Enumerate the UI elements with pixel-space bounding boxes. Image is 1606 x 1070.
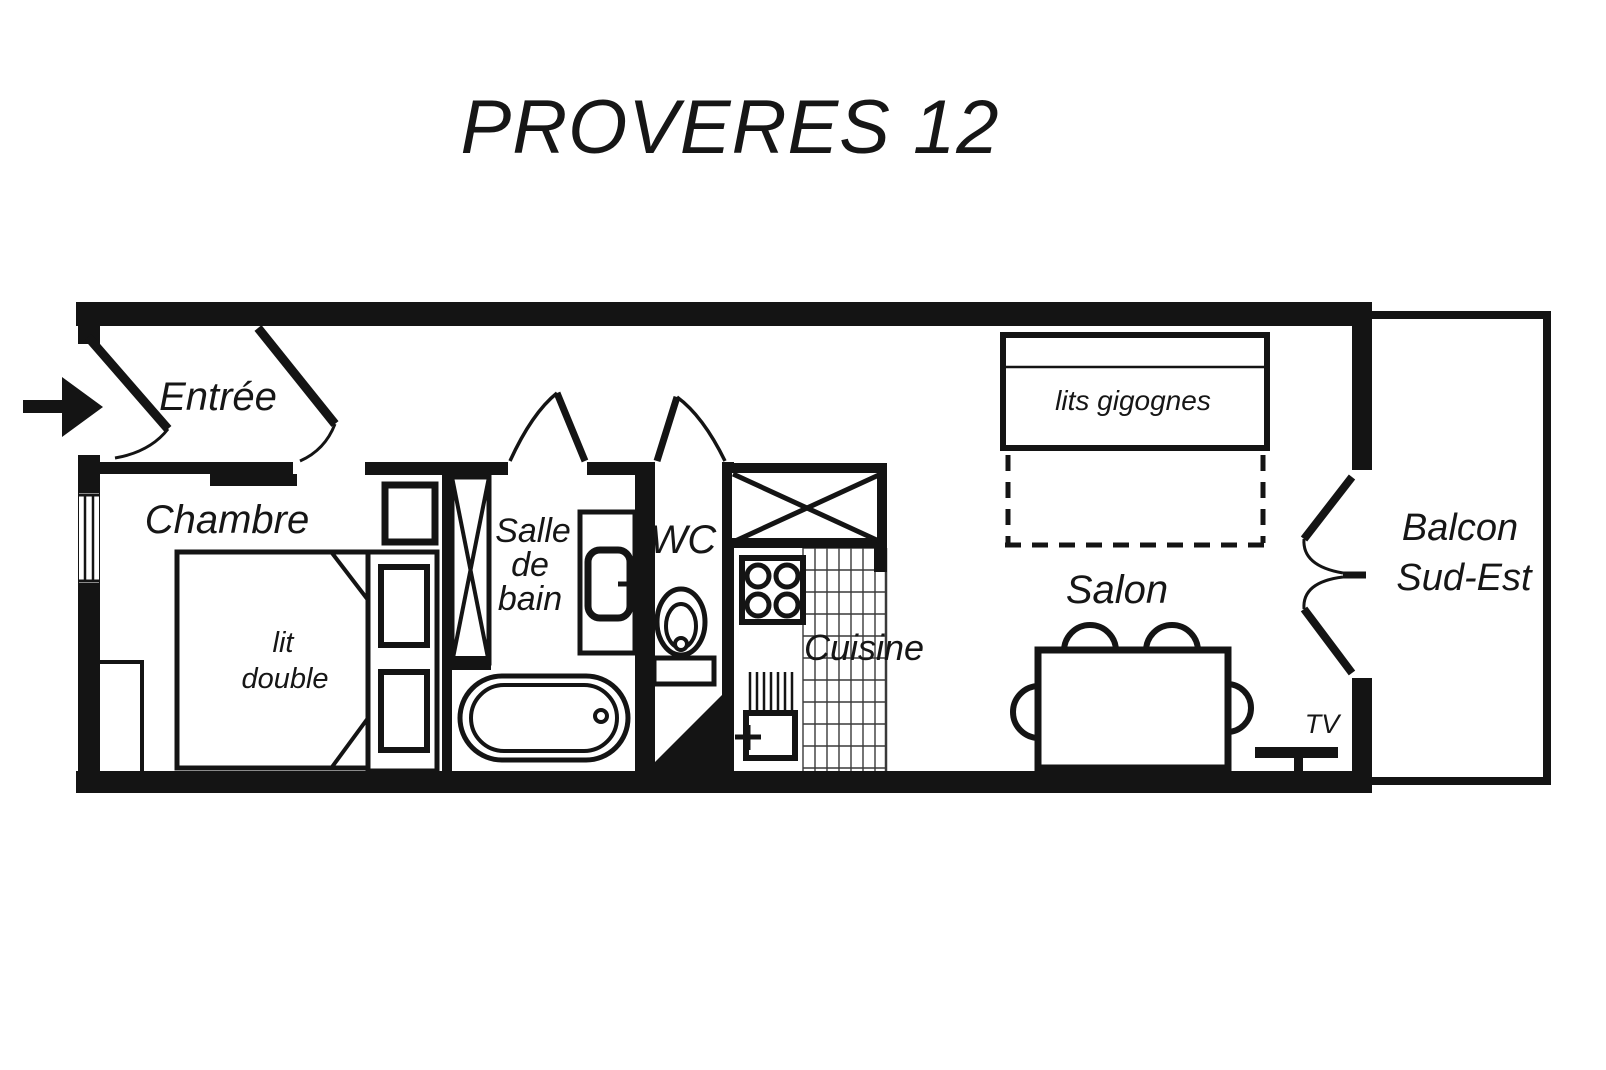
wall-wc-diagonal [646,695,734,771]
label-salle-de-bain-1: Salle [495,512,571,550]
label-wc: WC [650,518,718,562]
stove-burner [747,594,769,616]
tv-unit [1255,747,1338,758]
stove-burner [747,565,769,587]
bathtub-drain [595,710,607,722]
wall-right-lower [1352,678,1372,771]
corner-cabinet [100,662,142,771]
label-entree: Entrée [159,375,277,419]
wardrobe [385,485,435,542]
label-lits-gigognes: lits gigognes [1055,385,1211,416]
crossed-storage-unit [727,468,882,543]
nested-beds-extension [1005,455,1266,545]
wc-fixtures [654,589,714,684]
nightstand [381,672,427,750]
dining-table [1038,650,1228,768]
floor-plan-drawing: PROVERES 12 Entrée Chambre lit double Sa… [0,0,1606,1070]
label-cuisine: Cuisine [804,627,924,668]
entrance-arrow-icon [23,377,103,437]
wall-bottom [76,771,1372,793]
label-tv: TV [1305,709,1342,739]
bathroom-door [510,393,585,461]
wall-kitchen-stub [874,548,887,572]
label-chambre: Chambre [145,498,310,542]
wall-corridor [365,462,508,475]
wc-door [657,397,725,461]
wall-bathroom-wc [635,462,655,771]
stove-burner [776,594,798,616]
label-balcon-1: Balcon [1402,507,1518,549]
window [79,493,99,583]
kitchen-fixtures [727,468,882,758]
entry-door [88,337,168,458]
toilet-base [654,658,714,684]
stove-burner [776,565,798,587]
drainboard [750,672,792,710]
label-salle-de-bain-2: de [511,546,549,584]
nightstand [381,567,427,645]
wall-chambre-top [80,462,293,474]
label-lit-double-2: double [241,663,328,695]
wall-top [76,302,1372,326]
tv-stand [1294,758,1303,771]
chambre-sliding-door [210,474,297,486]
toilet-drain [675,638,687,650]
wall-right-upper [1352,326,1372,470]
label-balcon-2: Sud-Est [1396,557,1533,599]
floor-plan-page: PROVERES 12 Entrée Chambre lit double Sa… [0,0,1606,1070]
balcony-doors [1304,477,1366,673]
hall-closet [450,477,491,670]
label-salle-de-bain-3: bain [498,580,562,618]
label-lit-double-1: lit [273,627,296,659]
double-bed [177,552,368,768]
plan-title: PROVERES 12 [461,85,1000,170]
label-salon: Salon [1066,568,1168,612]
